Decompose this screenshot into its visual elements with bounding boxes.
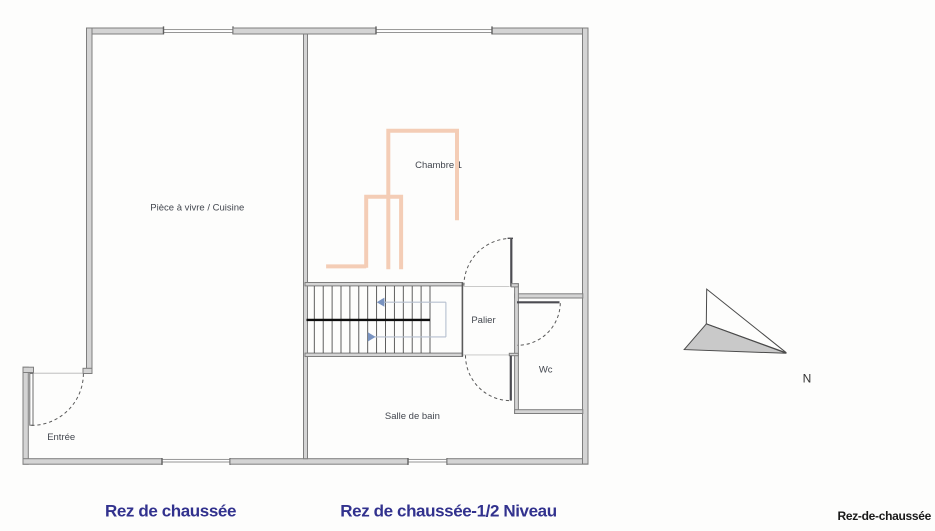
svg-text:N: N — [803, 372, 812, 386]
svg-text:Pièce à vivre / Cuisine: Pièce à vivre / Cuisine — [150, 203, 244, 214]
svg-text:Wc: Wc — [539, 365, 553, 376]
svg-text:Entrée: Entrée — [47, 432, 75, 443]
svg-text:Rez-de-chaussée: Rez-de-chaussée — [837, 509, 931, 523]
svg-text:Rez de chaussée-1/2 Niveau: Rez de chaussée-1/2 Niveau — [340, 502, 556, 521]
svg-text:Rez de chaussée: Rez de chaussée — [105, 502, 236, 521]
svg-text:Salle de bain: Salle de bain — [385, 411, 440, 422]
svg-text:Palier: Palier — [471, 315, 495, 326]
